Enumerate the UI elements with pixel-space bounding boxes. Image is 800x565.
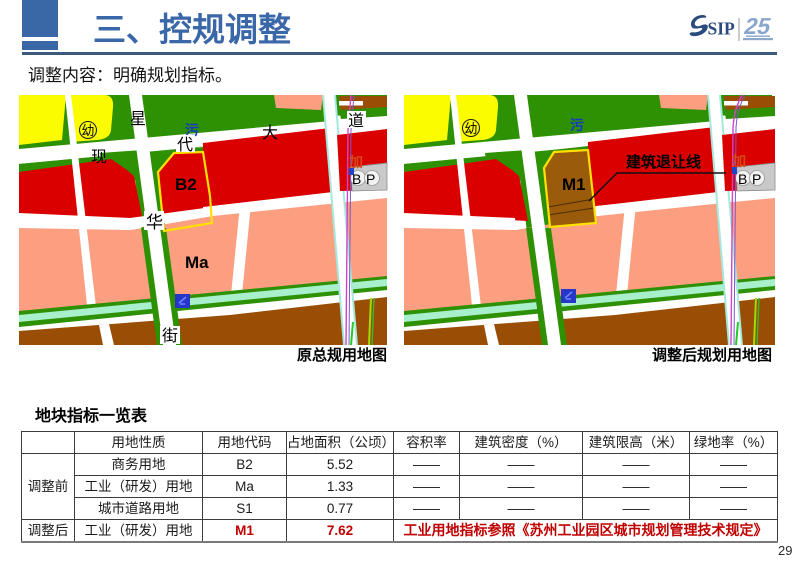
- svg-text:M1: M1: [562, 175, 586, 194]
- svg-text:加: 加: [348, 154, 363, 170]
- svg-text:B: B: [738, 171, 747, 187]
- svg-text:华: 华: [146, 213, 163, 232]
- svg-text:B2: B2: [175, 175, 197, 194]
- svg-text:大: 大: [262, 124, 278, 142]
- svg-text:建筑退让线: 建筑退让线: [626, 153, 701, 171]
- svg-text:B: B: [352, 171, 361, 187]
- svg-text:污: 污: [570, 117, 584, 133]
- svg-text:加: 加: [731, 153, 746, 169]
- svg-text:P: P: [366, 171, 375, 187]
- svg-text:道: 道: [348, 112, 364, 130]
- svg-text:星: 星: [130, 111, 146, 128]
- svg-text:代: 代: [177, 136, 193, 154]
- svg-text:Ma: Ma: [185, 253, 209, 272]
- svg-text:幼: 幼: [465, 121, 478, 136]
- svg-text:幼: 幼: [82, 123, 95, 138]
- svg-text:现: 现: [91, 149, 107, 166]
- svg-text:P: P: [752, 171, 761, 187]
- svg-text:街: 街: [162, 327, 178, 345]
